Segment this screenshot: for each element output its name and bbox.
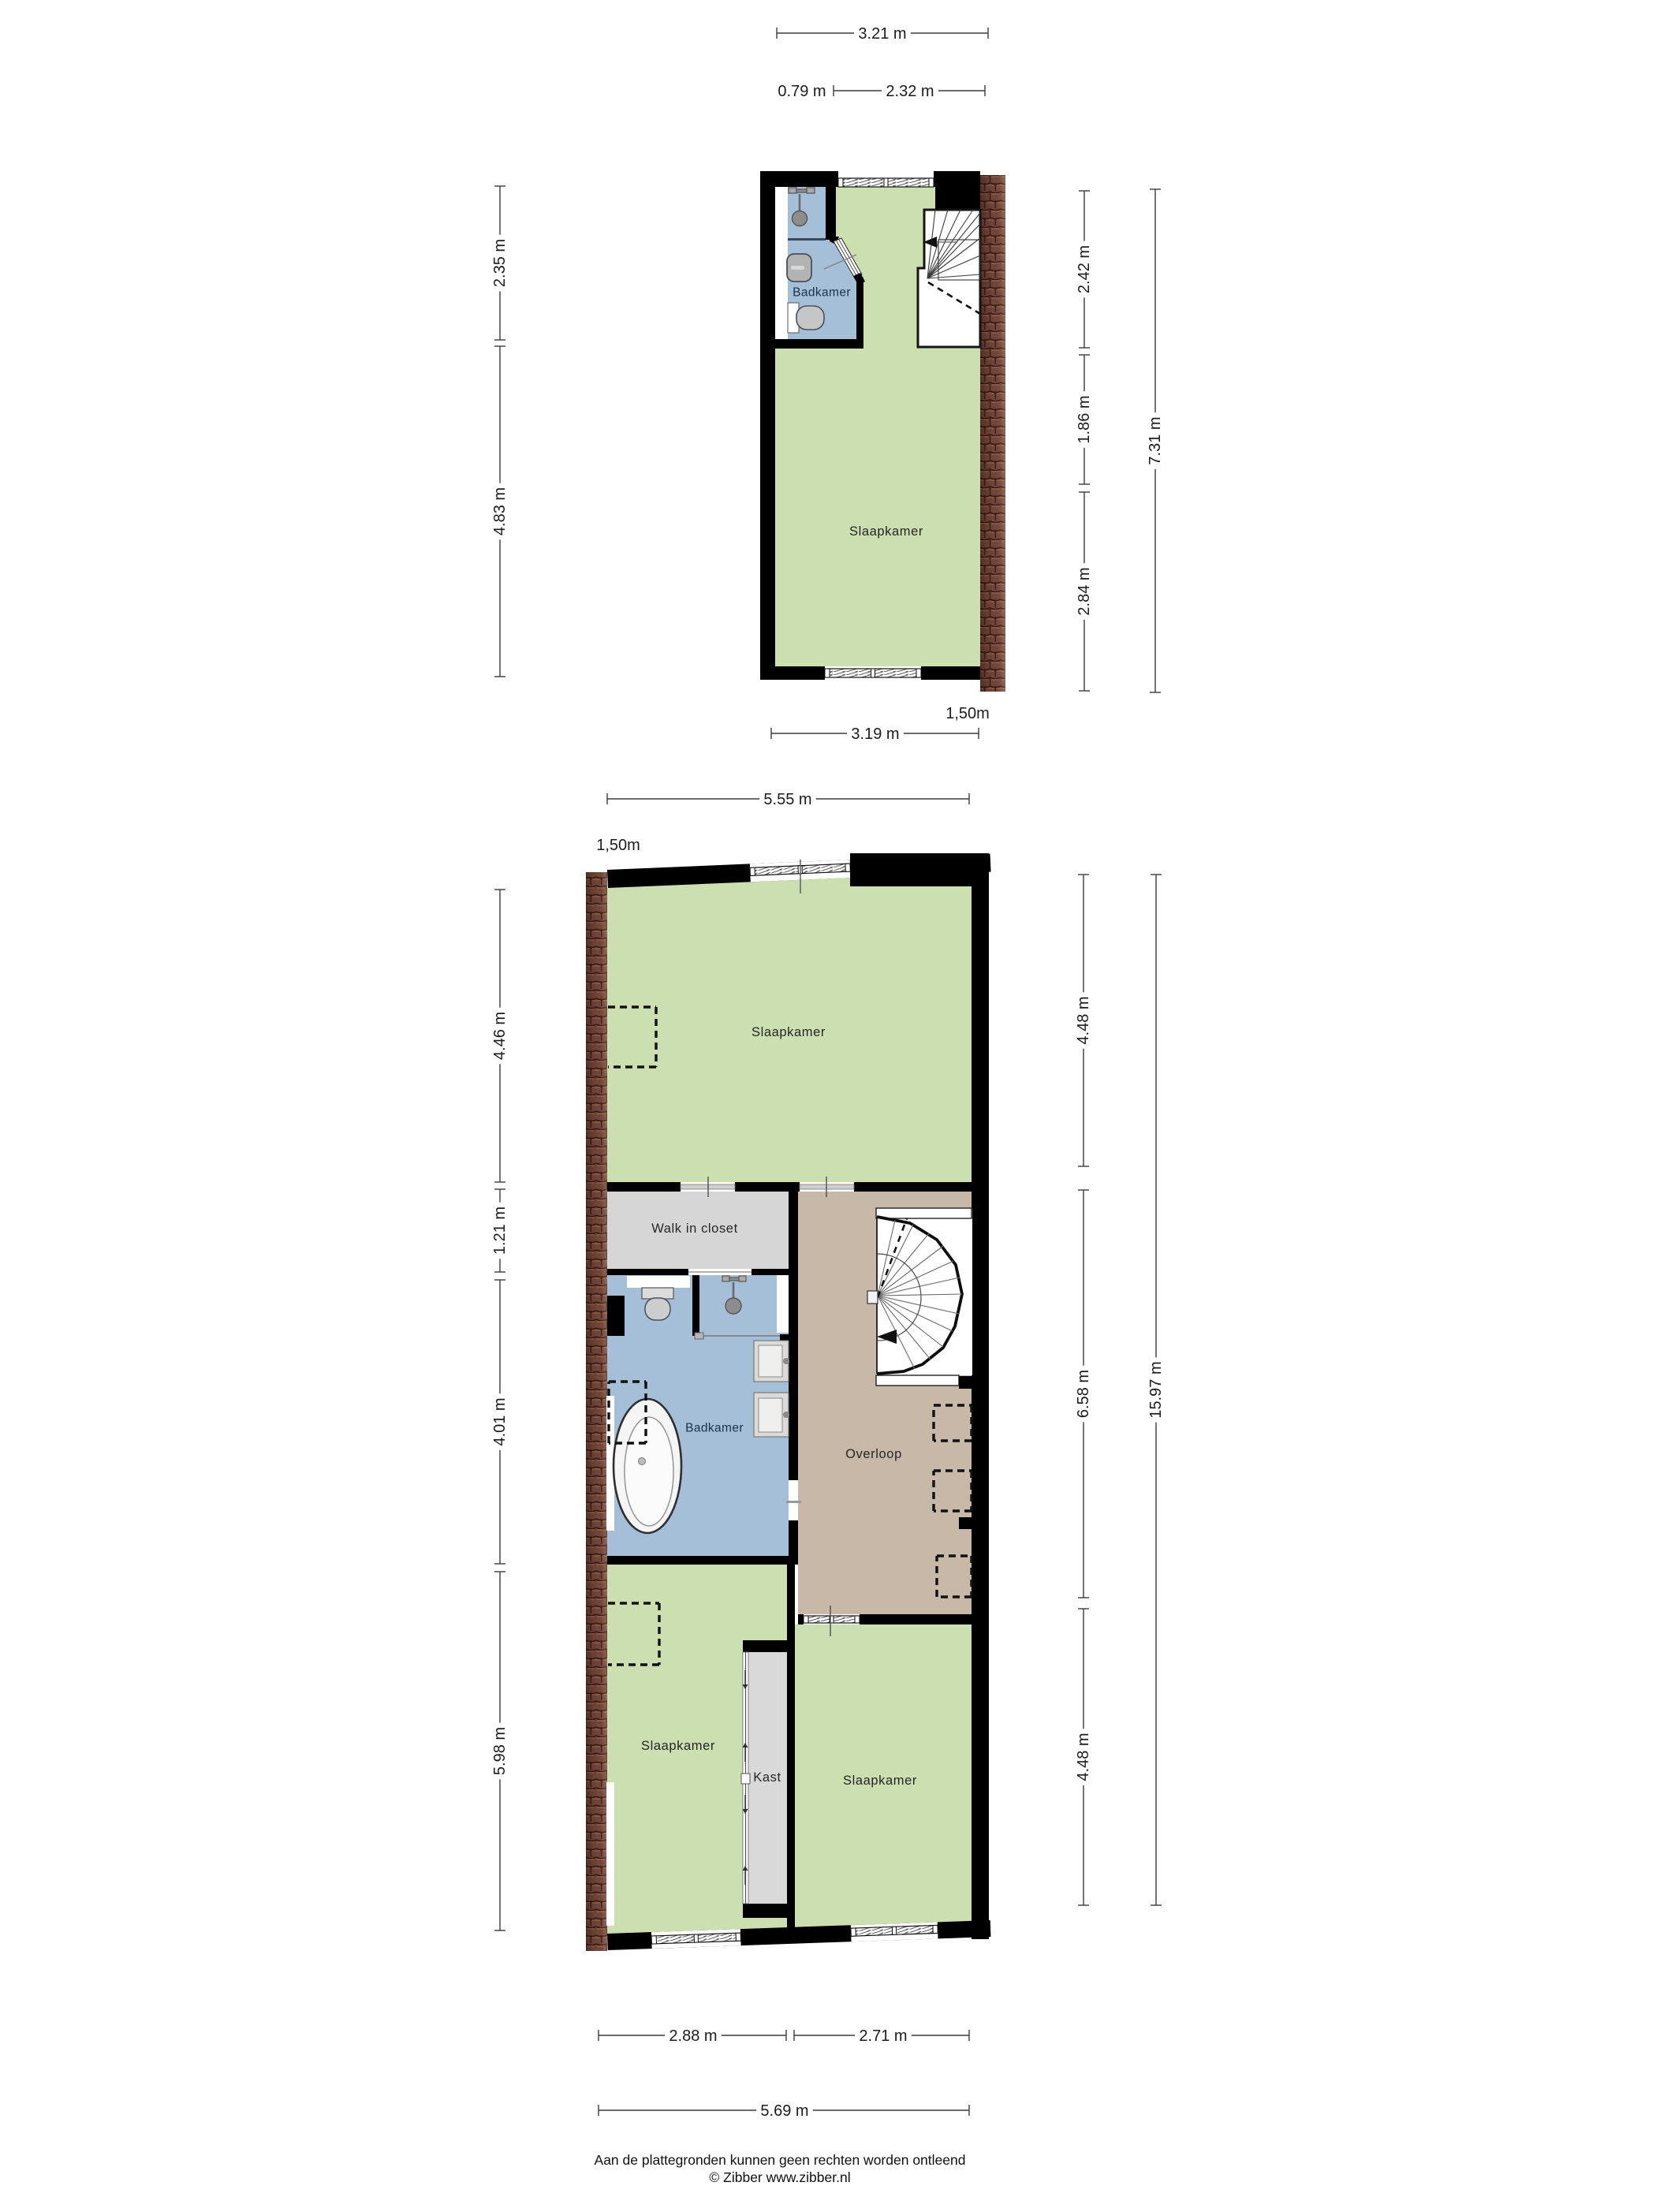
- svg-text:Badkamer: Badkamer: [793, 286, 851, 300]
- svg-text:1,50m: 1,50m: [596, 837, 640, 854]
- svg-text:2.71 m: 2.71 m: [859, 2027, 907, 2045]
- svg-text:Badkamer: Badkamer: [685, 1422, 744, 1435]
- svg-text:1,50m: 1,50m: [945, 705, 990, 722]
- svg-text:Overloop: Overloop: [845, 1447, 902, 1461]
- svg-text:2.32 m: 2.32 m: [886, 83, 934, 100]
- svg-text:1.21 m: 1.21 m: [491, 1207, 509, 1255]
- svg-text:2.84 m: 2.84 m: [1076, 567, 1093, 615]
- svg-text:Slaapkamer: Slaapkamer: [641, 1739, 715, 1753]
- svg-text:5.55 m: 5.55 m: [763, 791, 811, 808]
- svg-text:0.79 m: 0.79 m: [778, 83, 826, 100]
- svg-text:3.21 m: 3.21 m: [858, 25, 906, 43]
- svg-text:5.69 m: 5.69 m: [760, 2102, 808, 2120]
- svg-text:2.42 m: 2.42 m: [1076, 245, 1093, 293]
- svg-text:2.88 m: 2.88 m: [669, 2027, 717, 2045]
- svg-text:Slaapkamer: Slaapkamer: [843, 1774, 917, 1788]
- svg-text:Walk in closet: Walk in closet: [651, 1222, 738, 1236]
- svg-text:Slaapkamer: Slaapkamer: [752, 1025, 826, 1039]
- svg-text:2.35 m: 2.35 m: [491, 239, 509, 287]
- svg-text:4.48 m: 4.48 m: [1075, 996, 1092, 1044]
- svg-text:4.01 m: 4.01 m: [491, 1397, 509, 1445]
- svg-text:Aan de plattegronden kunnen ge: Aan de plattegronden kunnen geen rechten…: [595, 2152, 966, 2168]
- svg-text:1.86 m: 1.86 m: [1076, 395, 1093, 443]
- svg-text:7.31 m: 7.31 m: [1147, 416, 1164, 464]
- svg-text:4.46 m: 4.46 m: [491, 1012, 509, 1060]
- svg-text:5.98 m: 5.98 m: [491, 1727, 509, 1775]
- svg-text:4.83 m: 4.83 m: [491, 487, 509, 535]
- svg-text:15.97 m: 15.97 m: [1147, 1361, 1165, 1418]
- svg-text:© Zibber www.zibber.nl: © Zibber www.zibber.nl: [709, 2169, 850, 2185]
- svg-text:6.58 m: 6.58 m: [1075, 1370, 1092, 1418]
- svg-text:Slaapkamer: Slaapkamer: [849, 524, 923, 539]
- svg-text:3.19 m: 3.19 m: [851, 726, 899, 743]
- svg-text:4.48 m: 4.48 m: [1075, 1733, 1092, 1781]
- svg-text:Kast: Kast: [753, 1770, 781, 1785]
